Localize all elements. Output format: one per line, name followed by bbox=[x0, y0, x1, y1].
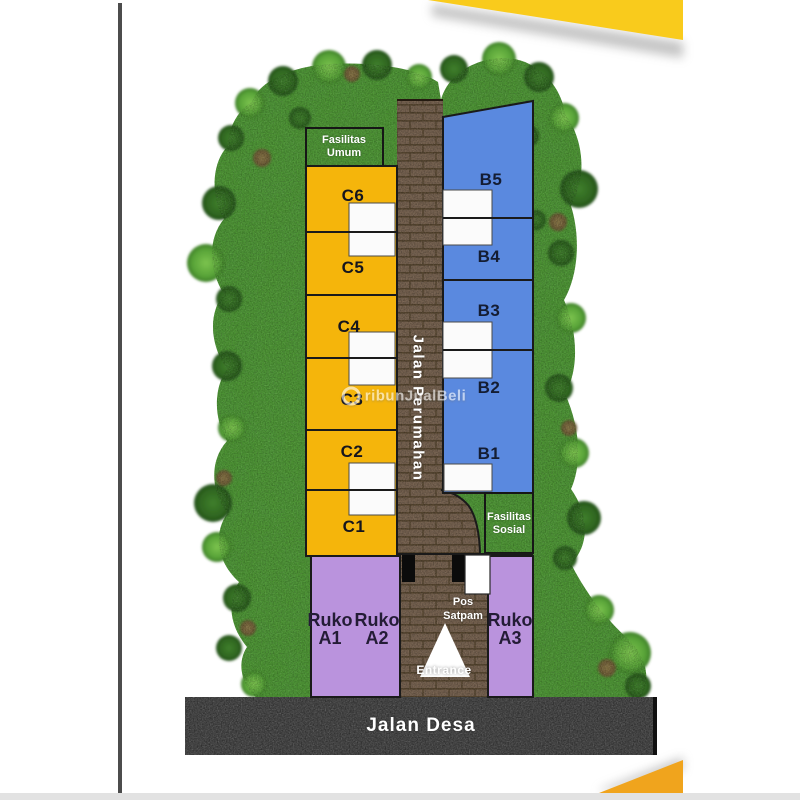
village-road-edge bbox=[653, 697, 657, 755]
village-road-label: Jalan Desa bbox=[366, 715, 475, 737]
carport-pad bbox=[349, 203, 395, 256]
bottom-strip bbox=[0, 793, 800, 800]
left-border-line bbox=[118, 3, 122, 793]
unit-label-b1: B1 bbox=[478, 444, 501, 464]
facility-public-label: FasilitasUmum bbox=[322, 134, 366, 160]
gate-post-right bbox=[452, 555, 465, 582]
listing-image: FasilitasUmum FasilitasSosial C6 C5 C4 C… bbox=[0, 0, 800, 800]
facility-social-label: FasilitasSosial bbox=[487, 511, 531, 537]
watermark: ribunJualBeli bbox=[342, 387, 467, 406]
unit-label-b3: B3 bbox=[478, 301, 501, 321]
guard-post-label: PosSatpam bbox=[443, 595, 483, 623]
unit-label-c5: C5 bbox=[342, 258, 365, 278]
unit-label-c4: C4 bbox=[338, 317, 361, 337]
unit-label-c1: C1 bbox=[343, 517, 366, 537]
ruko-label-a3: RukoA3 bbox=[488, 611, 533, 647]
main-road-label: Jalan Perumahan bbox=[409, 335, 426, 482]
unit-label-b4: B4 bbox=[478, 247, 501, 267]
carport-pad bbox=[444, 464, 492, 491]
unit-label-c2: C2 bbox=[341, 442, 364, 462]
entrance-label: Entrance bbox=[416, 664, 471, 678]
unit-label-b5: B5 bbox=[480, 170, 503, 190]
unit-label-b2: B2 bbox=[478, 378, 501, 398]
ruko-label-a2: RukoA2 bbox=[355, 611, 400, 647]
gate-post-left bbox=[402, 555, 415, 582]
ruko-label-a1: RukoA1 bbox=[308, 611, 353, 647]
watermark-logo-icon bbox=[342, 387, 361, 406]
watermark-text: ribunJualBeli bbox=[365, 388, 467, 405]
guard-post-building bbox=[465, 555, 490, 594]
unit-label-c6: C6 bbox=[342, 186, 365, 206]
block-b bbox=[443, 101, 533, 493]
